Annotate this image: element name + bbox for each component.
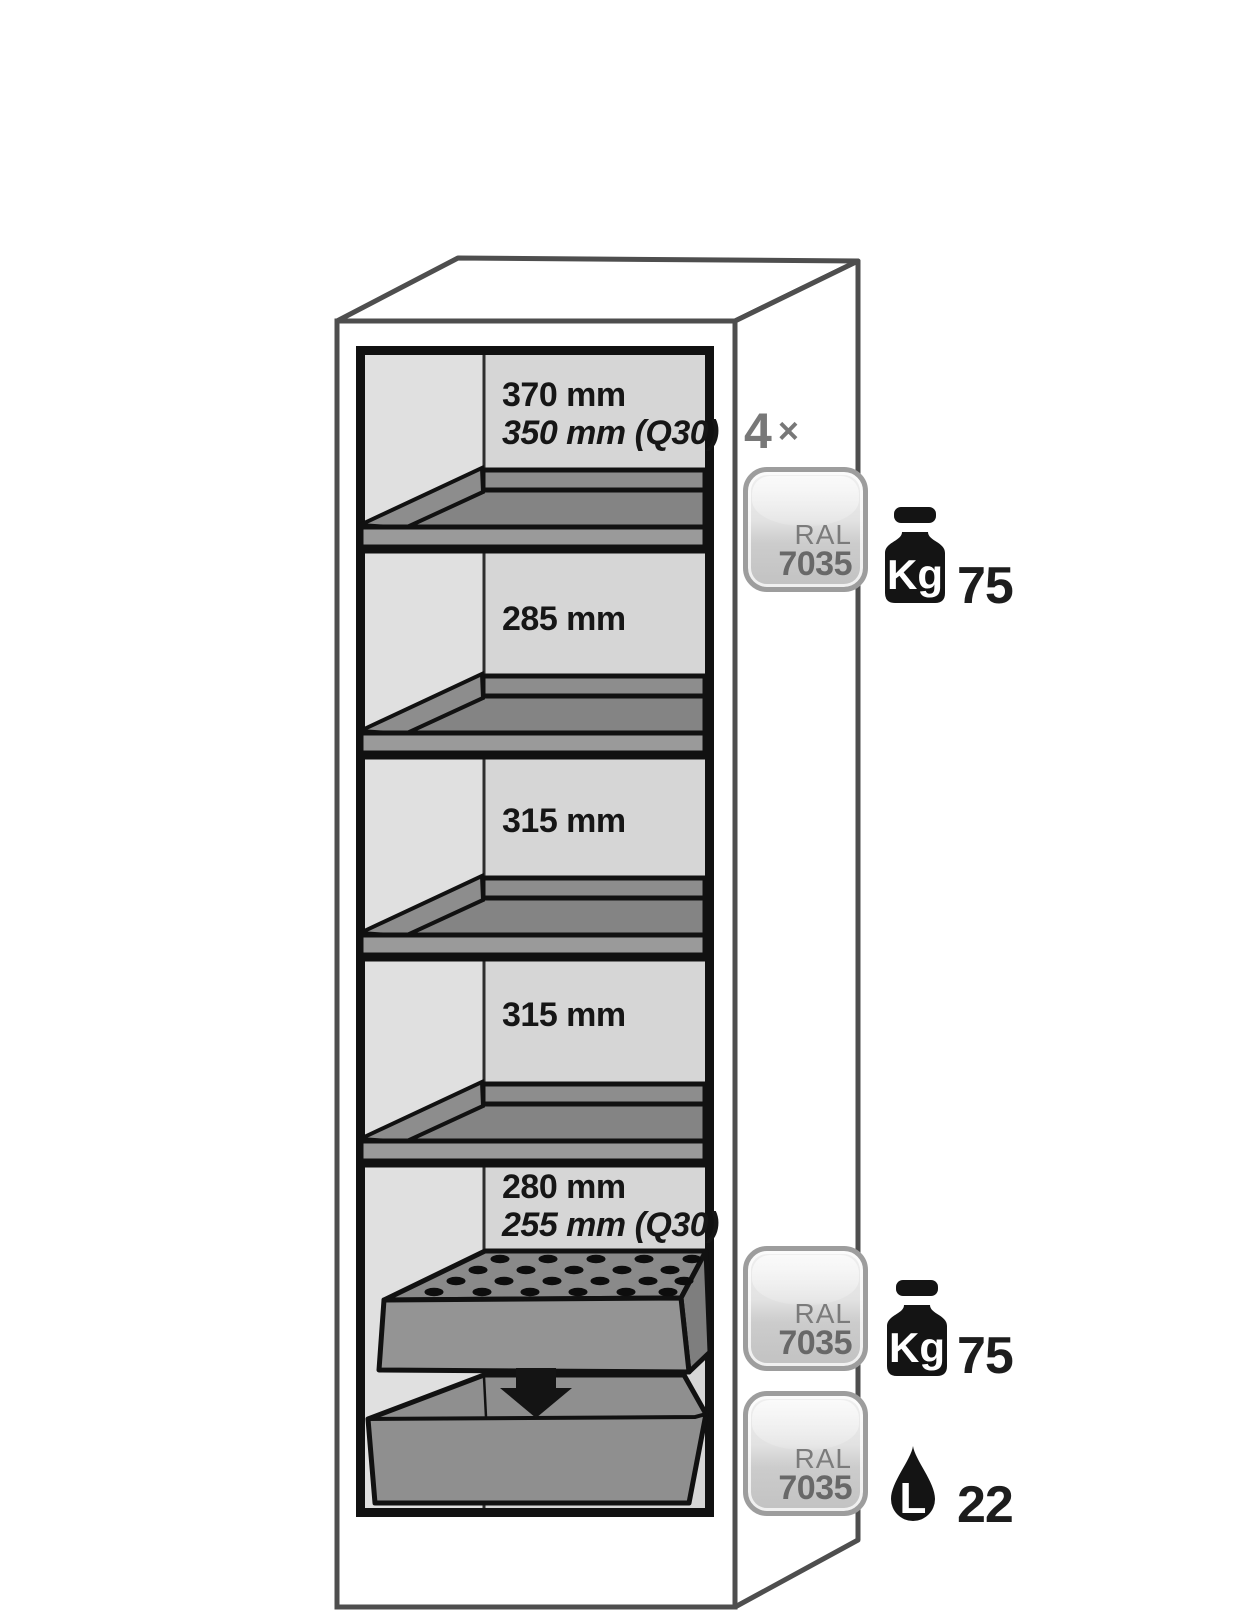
ral-label: RAL [778,521,852,548]
kg-unit-label: Kg [889,1324,945,1371]
compartment-1-height: 370 mm [502,376,719,414]
ral-7035-badge-sump: RAL 7035 [743,1391,868,1516]
compartment-2-label: 285 mm [502,600,626,638]
ral-code: 7035 [778,1327,852,1359]
compartment-1-label: 370 mm 350 mm (Q30) [502,376,719,452]
weight-kg-icon: Kg [886,1280,948,1381]
sump-volume-value: 22 [957,1479,1013,1531]
ral-label: RAL [778,1445,852,1472]
compartment-5-height-q30: 255 mm (Q30) [502,1206,719,1244]
compartment-5-label: 280 mm 255 mm (Q30) [502,1168,719,1244]
weight-kg-icon: Kg [884,507,946,608]
litre-unit-label: L [900,1474,927,1523]
ral-code: 7035 [778,1472,852,1504]
liquid-drop-icon: L [885,1444,941,1529]
shelf-count-label: 4× [744,406,799,456]
compartment-3-height: 315 mm [502,802,626,840]
kg-unit-label: Kg [887,551,943,598]
multiply-icon: × [778,410,799,451]
ral-code: 7035 [778,548,852,580]
shelf-load-value: 75 [957,560,1013,612]
ral-label: RAL [778,1300,852,1327]
ral-7035-badge-shelves: RAL 7035 [743,467,868,592]
compartment-4-label: 315 mm [502,996,626,1034]
compartment-4-height: 315 mm [502,996,626,1034]
ral-7035-badge-insert: RAL 7035 [743,1246,868,1371]
cabinet-diagram: 370 mm 350 mm (Q30) 285 mm 315 mm 315 mm… [0,0,1241,1624]
compartment-1-height-q30: 350 mm (Q30) [502,414,719,452]
insert-load-value: 75 [957,1330,1013,1382]
compartment-5-height: 280 mm [502,1168,719,1206]
compartment-3-label: 315 mm [502,802,626,840]
shelf-count-number: 4 [744,403,772,459]
compartment-2-height: 285 mm [502,600,626,638]
